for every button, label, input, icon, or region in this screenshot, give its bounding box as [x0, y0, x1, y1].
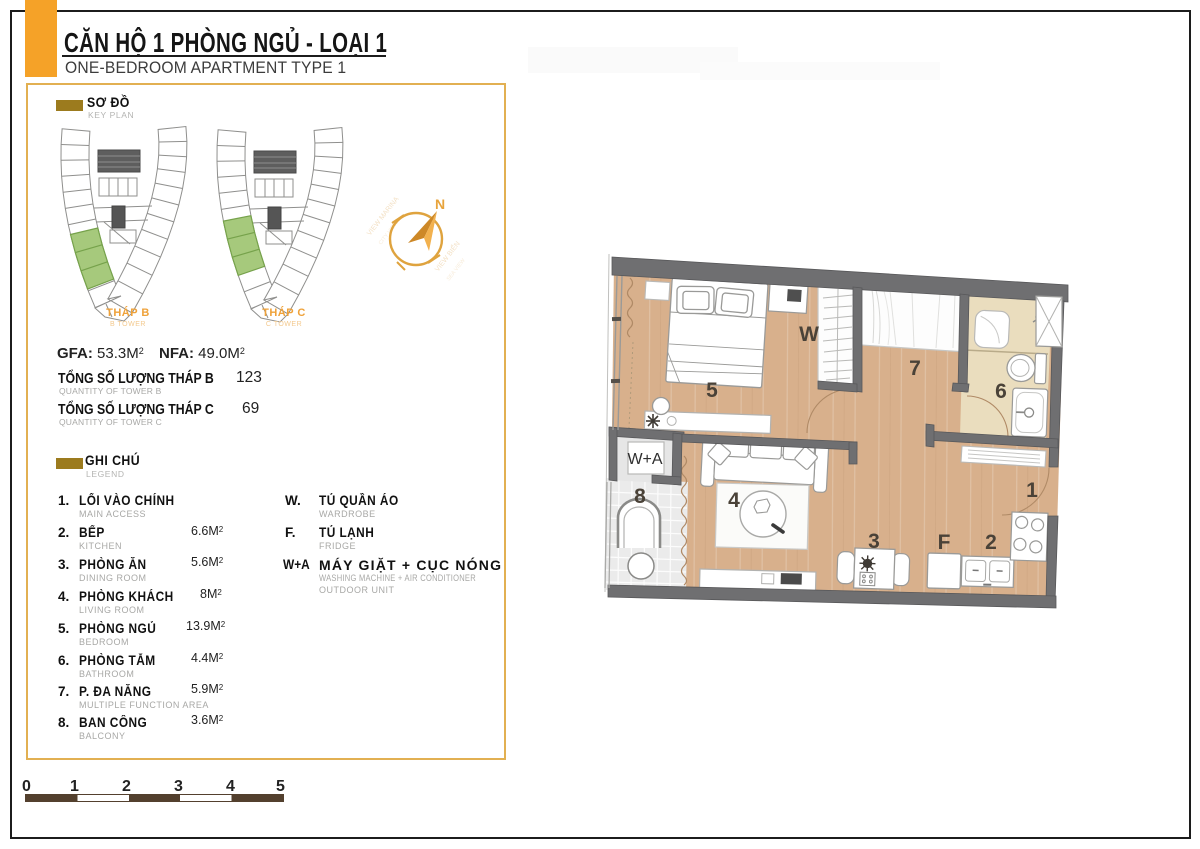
svg-text:6: 6 — [995, 380, 1007, 403]
svg-text:4: 4 — [728, 489, 740, 512]
svg-text:W: W — [799, 323, 819, 346]
svg-text:3: 3 — [868, 530, 880, 553]
svg-text:C TOWER: C TOWER — [266, 321, 302, 328]
svg-text:F: F — [938, 531, 951, 554]
svg-text:7: 7 — [909, 357, 921, 380]
svg-text:N: N — [435, 196, 445, 212]
svg-text:2: 2 — [985, 531, 997, 554]
svg-text:THÁP C: THÁP C — [262, 306, 306, 319]
svg-text:1: 1 — [1026, 479, 1038, 502]
svg-text:8: 8 — [634, 485, 646, 508]
svg-text:W+A: W+A — [627, 451, 662, 468]
svg-text:VIEW MARINA: VIEW MARINA — [366, 196, 401, 238]
svg-text:THÁP B: THÁP B — [106, 306, 150, 319]
svg-text:5: 5 — [706, 379, 718, 402]
svg-text:B TOWER: B TOWER — [110, 321, 146, 328]
